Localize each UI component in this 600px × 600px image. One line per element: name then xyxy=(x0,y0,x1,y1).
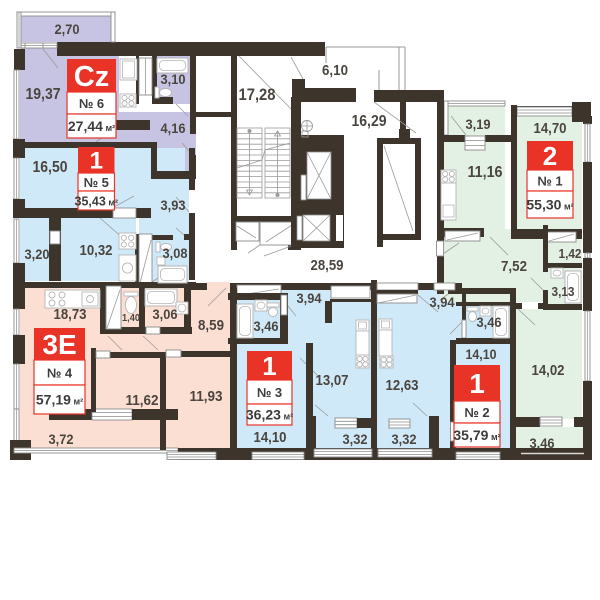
svg-text:4,16: 4,16 xyxy=(161,120,186,136)
svg-text:№ 1: № 1 xyxy=(537,174,562,189)
svg-text:1: 1 xyxy=(90,148,103,175)
svg-text:17,28: 17,28 xyxy=(239,85,276,104)
svg-text:14,10: 14,10 xyxy=(254,429,287,446)
svg-text:3,20: 3,20 xyxy=(25,246,50,262)
svg-text:3,72: 3,72 xyxy=(49,431,74,447)
svg-text:18,73: 18,73 xyxy=(54,306,87,323)
svg-text:11,16: 11,16 xyxy=(468,164,503,181)
svg-text:1,40: 1,40 xyxy=(122,313,140,324)
svg-text:№ 2: № 2 xyxy=(464,405,489,420)
svg-text:3,19: 3,19 xyxy=(466,116,491,132)
svg-text:28,59: 28,59 xyxy=(311,257,344,274)
svg-text:3,93: 3,93 xyxy=(161,197,186,213)
svg-text:11,62: 11,62 xyxy=(126,392,159,409)
svg-text:16,50: 16,50 xyxy=(33,159,68,176)
svg-text:19,37: 19,37 xyxy=(26,86,61,103)
svg-text:Cz: Cz xyxy=(74,61,109,93)
svg-text:6,10: 6,10 xyxy=(322,62,348,79)
svg-text:12,63: 12,63 xyxy=(386,377,419,394)
svg-text:3,46: 3,46 xyxy=(254,318,279,334)
svg-text:35,43 м²: 35,43 м² xyxy=(75,195,118,209)
svg-text:3,32: 3,32 xyxy=(392,431,417,447)
svg-text:3,94: 3,94 xyxy=(430,294,455,310)
svg-text:3,13: 3,13 xyxy=(552,284,575,299)
svg-text:16,29: 16,29 xyxy=(352,113,387,130)
svg-text:2: 2 xyxy=(543,141,557,171)
svg-text:3,46: 3,46 xyxy=(530,435,555,451)
svg-text:14,02: 14,02 xyxy=(532,362,565,379)
svg-text:3,32: 3,32 xyxy=(343,431,368,447)
svg-text:№ 4: № 4 xyxy=(47,366,73,381)
svg-text:1,42: 1,42 xyxy=(559,246,582,261)
svg-text:3,10: 3,10 xyxy=(161,71,186,87)
svg-text:3,06: 3,06 xyxy=(153,306,178,322)
svg-text:№ 6: № 6 xyxy=(79,96,104,111)
svg-text:3Е: 3Е xyxy=(42,329,76,360)
svg-text:№ 3: № 3 xyxy=(257,385,282,400)
svg-text:7,52: 7,52 xyxy=(501,258,527,275)
svg-text:14,10: 14,10 xyxy=(466,346,497,362)
svg-text:3,08: 3,08 xyxy=(163,245,188,261)
svg-text:2,70: 2,70 xyxy=(55,21,80,37)
svg-text:№ 5: № 5 xyxy=(84,175,109,190)
svg-text:3,46: 3,46 xyxy=(477,314,502,330)
svg-text:13,07: 13,07 xyxy=(316,372,349,389)
svg-text:11,93: 11,93 xyxy=(190,388,223,405)
svg-text:3,94: 3,94 xyxy=(297,290,322,306)
svg-text:14,70: 14,70 xyxy=(534,120,567,137)
svg-text:10,32: 10,32 xyxy=(80,242,113,259)
svg-text:8,59: 8,59 xyxy=(198,317,224,334)
svg-text:1: 1 xyxy=(262,351,276,381)
svg-text:1: 1 xyxy=(469,368,485,399)
